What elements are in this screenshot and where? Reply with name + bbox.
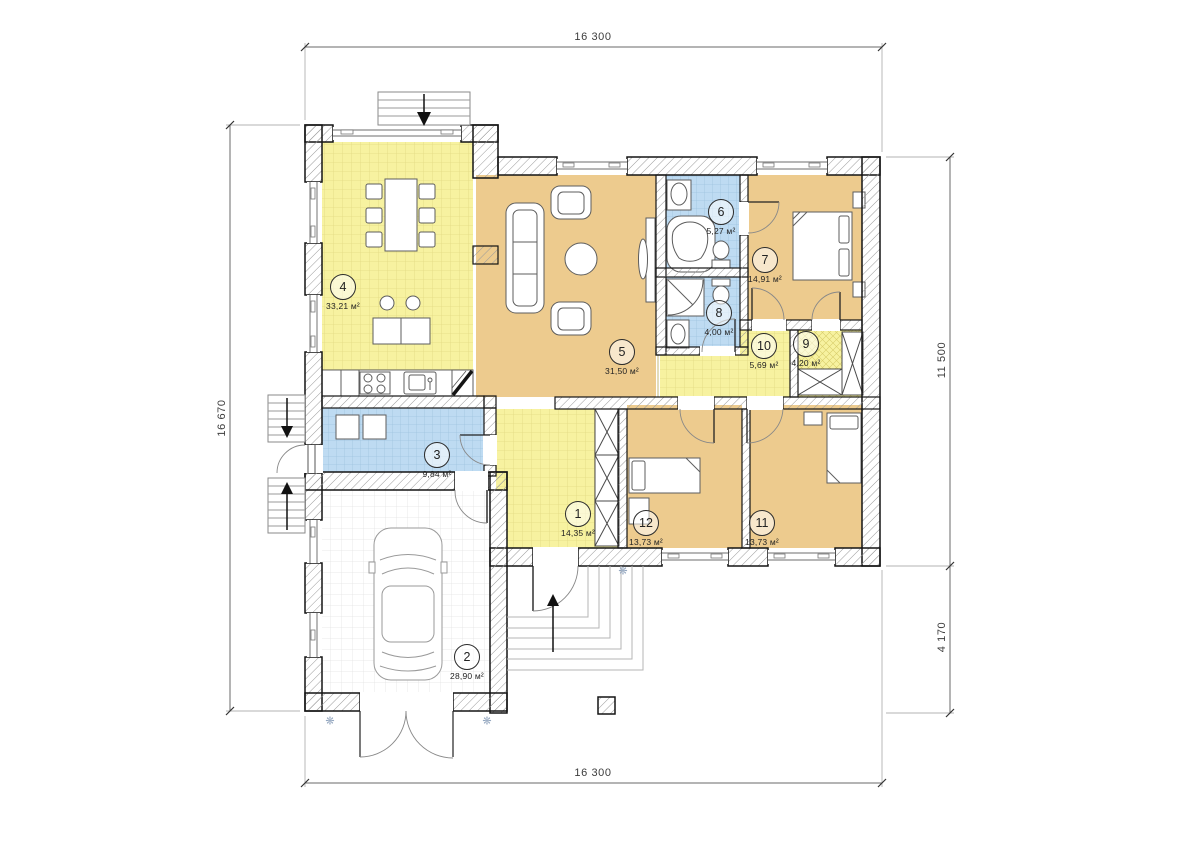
room-label-8: 84,00 м² — [674, 300, 764, 337]
room-area: 5,27 м² — [676, 226, 766, 236]
room-number-badge: 12 — [633, 510, 659, 536]
left-exterior-stair-lower — [268, 478, 305, 533]
nightstand — [804, 412, 822, 425]
dimension-left: 16 670 — [216, 399, 228, 436]
room-area: 5,69 м² — [719, 360, 809, 370]
room-number-badge: 2 — [454, 644, 480, 670]
top-exterior-stair — [378, 92, 470, 126]
room-number-badge: 8 — [706, 300, 732, 326]
armchair — [551, 186, 591, 219]
washing-machine — [363, 415, 386, 439]
room-label-6: 65,27 м² — [676, 199, 766, 236]
room-number-badge: 11 — [749, 510, 775, 536]
room-number-badge: 1 — [565, 501, 591, 527]
ground-marker-icon: ❋ — [618, 565, 627, 578]
floor-plan-page: 16 300 16 300 16 670 11 500 4 170 114,35… — [0, 0, 1200, 848]
washing-machine — [336, 415, 359, 439]
room-number-badge: 3 — [424, 442, 450, 468]
window — [307, 520, 320, 563]
room-label-11: 1113,73 м² — [717, 510, 807, 547]
side-entry-door — [277, 445, 323, 473]
sofa — [506, 203, 544, 313]
entrance-arrow-up-icon — [547, 594, 559, 652]
room-area: 13,73 м² — [601, 537, 691, 547]
dimension-right-upper: 11 500 — [936, 342, 948, 378]
porch-column — [598, 697, 615, 714]
kitchen-sink-icon — [404, 372, 436, 394]
room-number-badge: 5 — [609, 339, 635, 365]
stove-icon — [360, 372, 390, 394]
ground-marker-icon: ❋ — [325, 715, 334, 728]
dimension-right-lower: 4 170 — [936, 622, 948, 653]
ground-marker-icon: ❋ — [482, 715, 491, 728]
room-label-4: 433,21 м² — [298, 274, 388, 311]
room-area: 33,21 м² — [298, 301, 388, 311]
armchair — [551, 302, 591, 335]
left-exterior-stair-upper — [268, 395, 305, 442]
room-label-12: 1213,73 м² — [601, 510, 691, 547]
corner-unit-icon — [452, 370, 473, 396]
room-label-5: 531,50 м² — [577, 339, 667, 376]
garage-door — [360, 692, 453, 758]
window — [662, 550, 728, 564]
room-area: 28,90 м² — [422, 671, 512, 681]
room-label-10: 105,69 м² — [719, 333, 809, 370]
room-number-badge: 10 — [751, 333, 777, 359]
dining-table — [385, 179, 417, 251]
dimension-bottom: 16 300 — [533, 767, 653, 779]
coffee-table — [565, 243, 597, 275]
room-area: 9,84 м² — [392, 469, 482, 479]
window — [307, 182, 320, 243]
dimension-top: 16 300 — [533, 31, 653, 43]
room-area: 31,50 м² — [577, 366, 667, 376]
room-number-badge: 7 — [752, 247, 778, 273]
room-label-3: 39,84 м² — [392, 442, 482, 479]
floor-plan-canvas — [0, 0, 1200, 848]
window — [307, 613, 320, 657]
single-bed — [827, 413, 861, 483]
kitchen-island — [373, 318, 430, 344]
room-label-2: 228,90 м² — [422, 644, 512, 681]
room-area: 14,91 м² — [720, 274, 810, 284]
kitchen-counter — [322, 370, 473, 396]
room-label-7: 714,91 м² — [720, 247, 810, 284]
window — [768, 550, 835, 564]
window — [757, 159, 827, 173]
window — [557, 159, 627, 173]
room-area: 13,73 м² — [717, 537, 807, 547]
window — [333, 127, 461, 140]
room-number-badge: 4 — [330, 274, 356, 300]
single-bed — [629, 458, 700, 493]
room-number-badge: 6 — [708, 199, 734, 225]
